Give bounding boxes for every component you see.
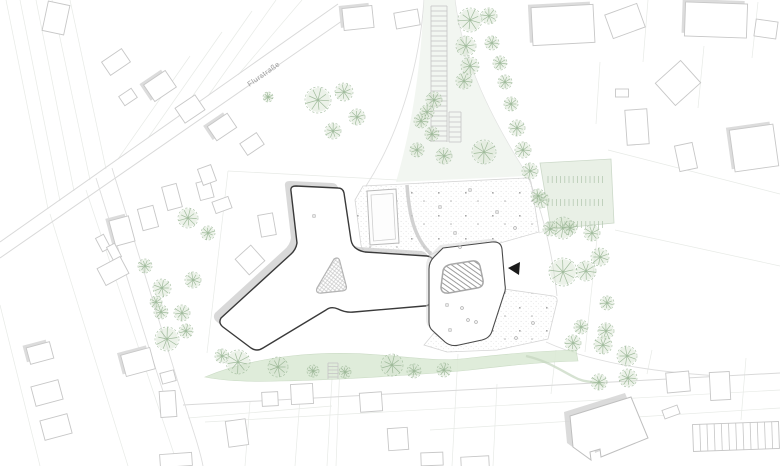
context-building [235, 245, 265, 275]
tree [591, 248, 609, 266]
tree [515, 142, 531, 158]
context-building-body [655, 60, 700, 105]
context-building-body [666, 371, 691, 393]
context-building-body [160, 370, 176, 384]
context-building-body [531, 4, 595, 45]
parcel-line [6, 0, 48, 209]
tree [155, 327, 179, 351]
context-building [258, 213, 277, 237]
context-building [662, 405, 680, 419]
context-building-body [662, 405, 680, 419]
tree [481, 8, 497, 24]
parcel-line [643, 0, 648, 62]
sports-field [367, 189, 399, 245]
context-building [754, 19, 778, 39]
tree [307, 365, 319, 377]
tree [509, 120, 525, 136]
context-building [31, 380, 63, 407]
tree [178, 208, 198, 228]
context-building-body [31, 380, 63, 407]
context-building-body [616, 89, 629, 97]
context-building [137, 205, 158, 230]
context-building-body [42, 1, 70, 35]
context-building-body [684, 2, 747, 38]
context-building-body [754, 19, 778, 39]
ne-parking-area [540, 159, 614, 229]
context-building [119, 88, 138, 106]
context-building [262, 392, 279, 407]
se-building [564, 393, 648, 460]
context-building [461, 456, 490, 466]
context-building-body [729, 124, 778, 172]
tree [493, 56, 507, 70]
tree [325, 123, 341, 139]
context-building-body [160, 452, 193, 466]
context-building-body [421, 452, 443, 466]
context-building-body [102, 49, 131, 76]
context-building [240, 133, 264, 156]
context-building [139, 68, 176, 103]
context-building [212, 196, 232, 213]
tree [565, 335, 581, 351]
context-building [605, 3, 646, 38]
context-building [726, 121, 779, 172]
context-building [625, 109, 649, 145]
tree [531, 189, 545, 203]
context-building-body [137, 205, 158, 230]
context-building-body [461, 456, 490, 466]
context-building [203, 111, 237, 143]
se-building-body [570, 397, 648, 460]
context-building-body [262, 392, 279, 407]
tree [215, 349, 229, 363]
tree [201, 226, 215, 240]
context-building-body [394, 9, 420, 29]
context-building-body [240, 133, 264, 156]
tree [591, 374, 607, 390]
parcel-line [70, 0, 106, 169]
context-building [105, 213, 135, 247]
context-building [674, 142, 697, 171]
tree [335, 83, 353, 101]
tree [549, 258, 577, 286]
context-building [97, 257, 129, 286]
context-building [709, 371, 730, 400]
tree [498, 75, 512, 89]
tree [600, 296, 614, 310]
se-parking [693, 422, 780, 452]
tree [522, 163, 538, 179]
context-building-body [359, 392, 382, 412]
context-building-body [258, 213, 277, 237]
context-building-body [225, 419, 248, 448]
context-building [666, 371, 691, 393]
tree [617, 346, 637, 366]
tree [574, 320, 588, 334]
context-building [225, 419, 248, 448]
context-building [160, 452, 193, 466]
context-building [102, 49, 131, 76]
tree [179, 324, 193, 338]
context-building-body [290, 383, 313, 404]
parcel-line [295, 398, 300, 466]
context-building [528, 1, 595, 45]
context-building-body [119, 88, 138, 106]
tree [504, 97, 518, 111]
context-building [159, 390, 177, 417]
entrance-arrow-icon [508, 262, 520, 275]
context-building-body [40, 414, 72, 441]
context-building-body [235, 245, 265, 275]
context-building [162, 183, 183, 210]
tree [305, 87, 331, 113]
tree [349, 109, 365, 125]
context-building-body [342, 5, 374, 30]
context-building [616, 89, 629, 97]
context-building [387, 427, 408, 450]
parcel-line [698, 46, 704, 108]
tree [584, 225, 600, 241]
context-building [117, 345, 155, 378]
parcel-line [615, 230, 780, 266]
pavilion-courtyard [441, 261, 483, 293]
context-building-body [212, 196, 232, 213]
parcel-line [596, 62, 600, 124]
tree [263, 92, 273, 102]
context-building-body [162, 183, 183, 210]
tree [485, 36, 499, 50]
context-building [42, 1, 70, 35]
tree [594, 336, 612, 354]
context-building [339, 3, 374, 31]
context-building-body [625, 109, 649, 145]
tree [598, 323, 614, 339]
context-building [394, 9, 420, 29]
parcel-line [493, 384, 497, 466]
context-building-body [674, 142, 697, 171]
tree [458, 8, 482, 32]
ne-parking [540, 159, 614, 229]
parcel-line [208, 0, 276, 96]
tree [153, 279, 171, 297]
tree [138, 259, 152, 273]
street-label: Flurstraße [246, 59, 282, 88]
context-building [359, 392, 382, 412]
tree [619, 369, 637, 387]
context-building [40, 414, 72, 441]
tree [226, 350, 250, 374]
tree [185, 272, 201, 288]
context-building [655, 60, 700, 105]
context-building [290, 383, 313, 404]
context-building [23, 339, 54, 365]
context-building-body [709, 371, 730, 400]
context-building [160, 370, 176, 384]
tree [174, 305, 190, 321]
parcel-line [647, 350, 652, 374]
context-building [681, 0, 747, 38]
context-building-body [159, 390, 177, 417]
context-building-body [387, 427, 408, 450]
context-building [421, 452, 443, 466]
parcel-line [0, 305, 40, 466]
context-building-body [97, 257, 129, 286]
site-plan-canvas: Flurstraße [0, 0, 780, 466]
tree [339, 366, 351, 378]
context-building-body [605, 3, 646, 38]
